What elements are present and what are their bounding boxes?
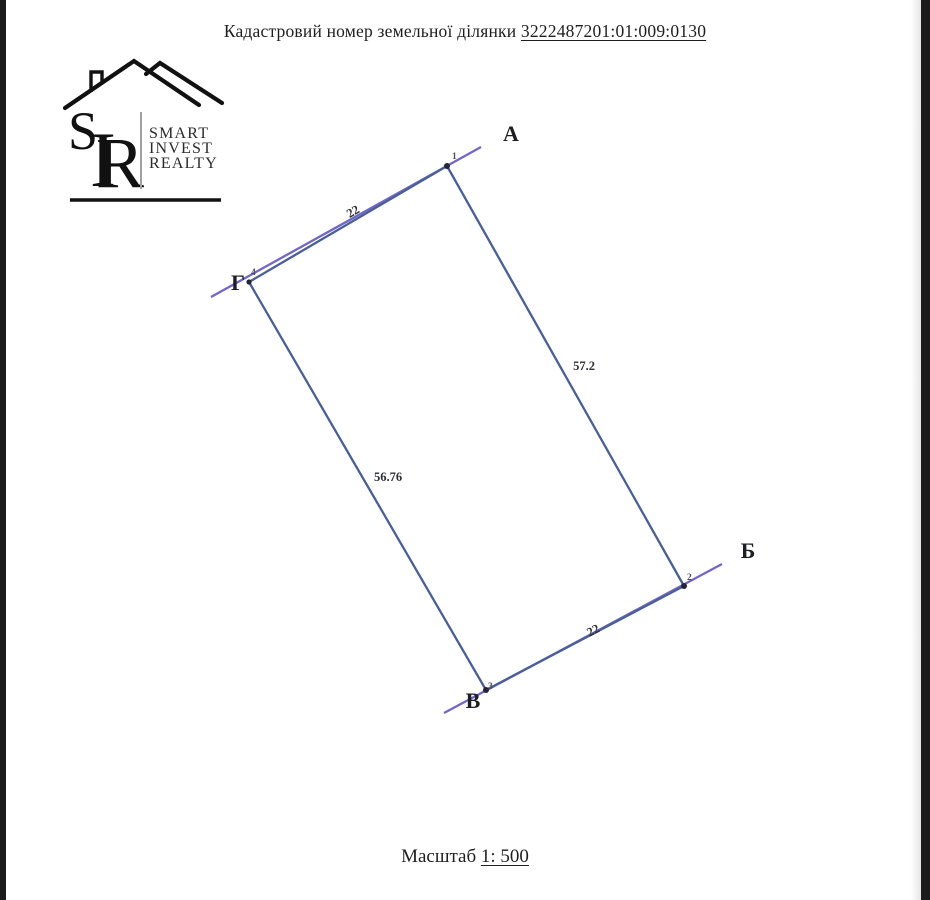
title-prefix: Кадастровий номер земельної ділянки — [224, 21, 517, 41]
logo-letter-r: R — [96, 123, 144, 203]
logo-word-realty: REALTY — [149, 155, 218, 172]
point-number-3: 3 — [488, 682, 493, 692]
point-number-4: 4 — [251, 268, 256, 278]
vertex-dot-g — [246, 279, 251, 284]
side-length-right: 57.2 — [573, 359, 595, 373]
company-logo: S I R SMART INVEST REALTY — [58, 52, 246, 220]
corner-label-v: В — [466, 688, 481, 713]
boundary-edge-bottom — [486, 586, 684, 690]
vertex-dot-b — [681, 583, 687, 589]
corner-label-a: А — [503, 121, 519, 146]
point-number-1: 1 — [452, 152, 457, 162]
boundary-edge-top — [249, 166, 447, 282]
boundary-edge-left — [249, 282, 486, 690]
vertex-dot-a — [444, 163, 450, 169]
corner-label-g: Г — [231, 270, 245, 295]
point-number-2: 2 — [687, 573, 692, 583]
boundary-edge-right — [447, 166, 684, 586]
right-edge-shade — [911, 0, 921, 900]
scale-label: Масштаб — [401, 846, 476, 867]
scale-note: Масштаб 1: 500 — [0, 846, 930, 868]
side-length-left: 56.76 — [374, 470, 402, 484]
logo-graphic: S I R SMART INVEST REALTY — [58, 52, 246, 220]
left-edge-bar — [0, 0, 6, 900]
right-edge-bar — [921, 0, 930, 900]
cadastral-number: 3222487201:01:009:0130 — [521, 21, 706, 41]
corner-label-b: Б — [741, 538, 756, 563]
scale-value: 1: 500 — [481, 846, 529, 867]
document-title: Кадастровий номер земельної ділянки 3222… — [0, 21, 930, 42]
